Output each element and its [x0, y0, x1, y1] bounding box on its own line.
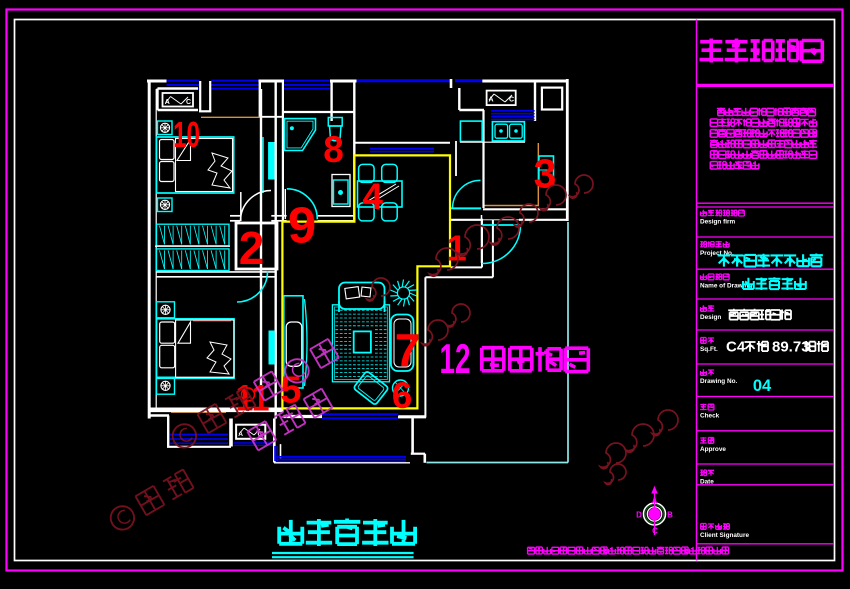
svg-text:8: 8 — [323, 129, 344, 170]
svg-text:D: D — [636, 511, 642, 520]
svg-text:A: A — [489, 97, 494, 104]
svg-text:9: 9 — [288, 197, 316, 254]
svg-text:B: B — [667, 511, 673, 520]
svg-text:6: 6 — [392, 375, 413, 416]
svg-text:89.73: 89.73 — [772, 339, 810, 356]
svg-text:A: A — [165, 99, 170, 106]
svg-text:C: C — [186, 99, 191, 106]
svg-text:Approve: Approve — [700, 446, 726, 453]
svg-text:C: C — [652, 527, 658, 536]
svg-text:A: A — [652, 497, 658, 506]
svg-text:7: 7 — [395, 324, 421, 376]
svg-text:3: 3 — [534, 151, 557, 197]
svg-text:A: A — [238, 431, 243, 438]
svg-text:Drawing No.: Drawing No. — [700, 378, 738, 385]
svg-text:C4: C4 — [726, 339, 746, 356]
svg-text:Sq.Ft.: Sq.Ft. — [700, 346, 718, 353]
svg-text:Design: Design — [700, 314, 721, 321]
svg-text:4: 4 — [362, 176, 383, 217]
svg-text:2: 2 — [239, 222, 265, 274]
svg-text:Client Signature: Client Signature — [700, 532, 749, 539]
svg-text:04: 04 — [753, 377, 772, 395]
svg-text:12: 12 — [440, 335, 471, 382]
svg-text:Design firm: Design firm — [700, 219, 735, 226]
svg-text:10: 10 — [173, 114, 200, 155]
svg-text:Check: Check — [700, 413, 720, 420]
svg-text:C: C — [509, 97, 514, 104]
